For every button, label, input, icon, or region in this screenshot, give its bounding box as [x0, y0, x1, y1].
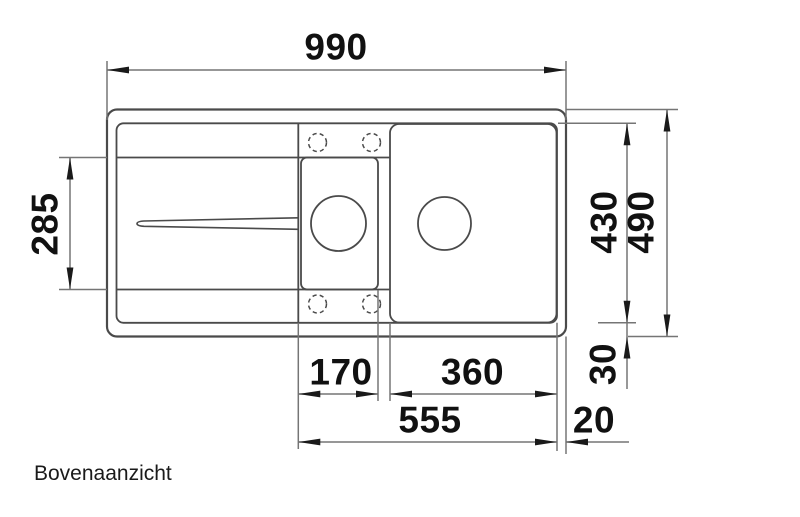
- sink-geometry: [107, 110, 566, 337]
- arrowhead-left-icon: [107, 67, 129, 74]
- arrowhead-right-icon: [544, 67, 566, 74]
- main-bowl: [390, 124, 557, 323]
- small-bowl-drain-hole: [311, 196, 366, 251]
- arrowhead-down-icon: [664, 315, 671, 337]
- arrowhead-down-icon: [624, 301, 631, 323]
- arrowhead-up-icon: [624, 337, 631, 359]
- sink-top-view-drawing: 990 285 430 490 30 170 360 555 20 Bovena…: [0, 0, 800, 517]
- arrowhead-left-icon: [298, 439, 320, 446]
- dim-label-overall-depth: 490: [623, 190, 660, 253]
- arrowhead-up-icon: [664, 110, 671, 132]
- tap-hole-icon: [363, 134, 381, 152]
- tap-hole-icon: [309, 295, 327, 313]
- arrowhead-down-icon: [67, 268, 74, 290]
- main-bowl-drain-hole: [418, 197, 471, 250]
- arrowhead-up-icon: [624, 123, 631, 145]
- dim-label-right-rim-width: 20: [573, 402, 615, 439]
- sink-inner-rim: [117, 123, 558, 322]
- arrowhead-left-icon: [390, 391, 412, 398]
- dim-label-overall-width: 990: [304, 29, 367, 66]
- arrowhead-right-icon: [535, 439, 557, 446]
- dim-label-basin-area-depth: 430: [586, 190, 623, 253]
- drainboard-groove: [137, 218, 299, 230]
- tap-hole-icon: [309, 134, 327, 152]
- arrowhead-right-icon: [535, 391, 557, 398]
- arrowhead-up-icon: [67, 158, 74, 180]
- dim-label-small-bowl-width: 170: [309, 354, 372, 391]
- sink-outer-outline: [107, 110, 566, 337]
- dim-label-drainboard-depth: 285: [27, 192, 64, 255]
- view-caption: Bovenaanzicht: [34, 462, 172, 486]
- dim-label-rim-depth: 30: [585, 343, 622, 385]
- dim-label-main-bowl-width: 360: [441, 354, 504, 391]
- dim-label-bowl-zone-width: 555: [398, 402, 461, 439]
- tap-holes: [309, 134, 381, 314]
